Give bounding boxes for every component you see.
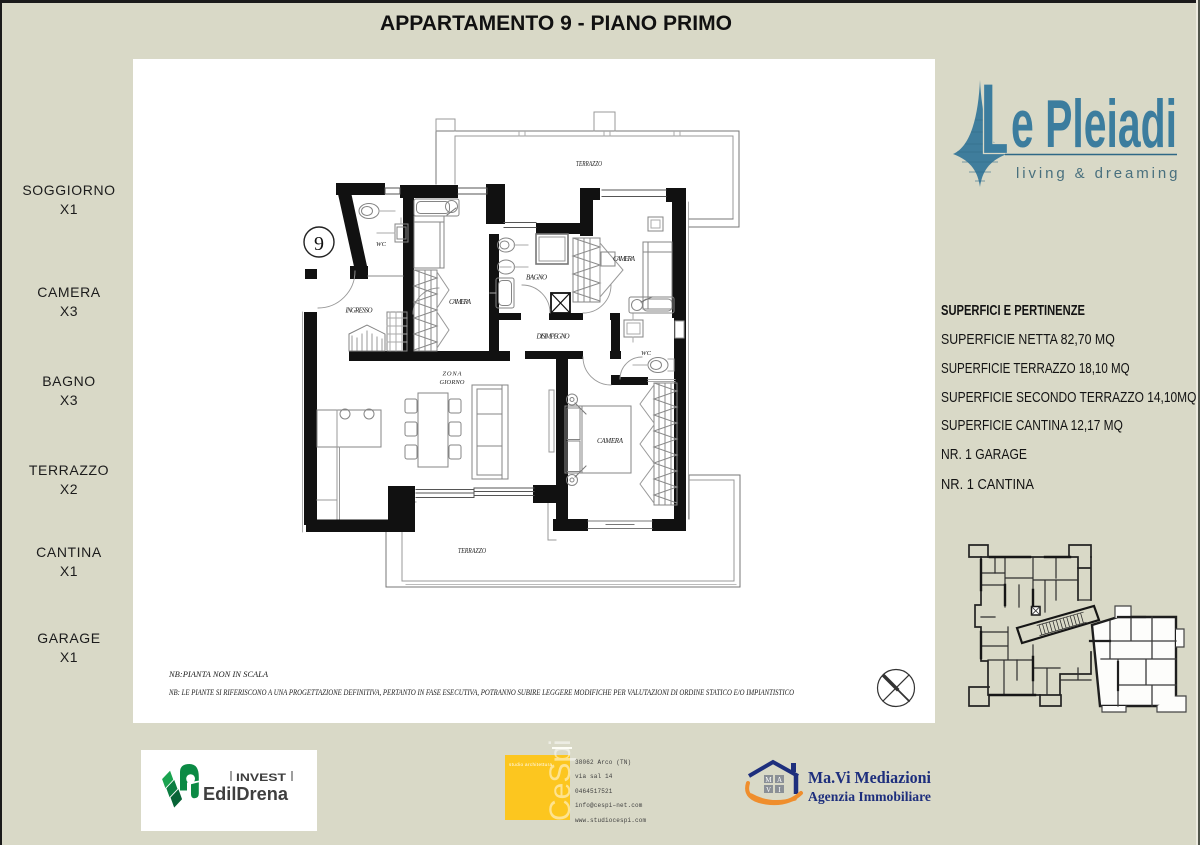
svg-text:NB: LE PIANTE SI RIFERISCONO A: NB: LE PIANTE SI RIFERISCONO A UNA PROGE… (168, 687, 794, 697)
svg-text:living & dreaming: living & dreaming (1016, 165, 1180, 182)
svg-text:SUPERFICIE CANTINA 12,17 MQ: SUPERFICIE CANTINA 12,17 MQ (941, 417, 1123, 434)
svg-text:Agenzia Immobiliare: Agenzia Immobiliare (808, 790, 931, 805)
svg-text:APPARTAMENTO 9 - PIANO PRIMO: APPARTAMENTO 9 - PIANO PRIMO (380, 12, 732, 35)
svg-text:SUPERFICIE NETTA 82,70 MQ: SUPERFICIE NETTA 82,70 MQ (941, 331, 1115, 347)
svg-text:e Pleiadi: e Pleiadi (1011, 86, 1177, 162)
svg-text:DISIMPEGNO: DISIMPEGNO (536, 333, 570, 341)
svg-text:BAGNO: BAGNO (526, 274, 547, 282)
svg-text:Ma.Vi Mediazioni: Ma.Vi Mediazioni (808, 768, 931, 787)
svg-text:CAMERA: CAMERA (449, 298, 472, 306)
svg-text:M: M (765, 776, 772, 784)
svg-text:CAMERA: CAMERA (613, 255, 636, 263)
svg-text:SUPERFICIE TERRAZZO 18,10 MQ: SUPERFICIE TERRAZZO 18,10 MQ (941, 360, 1130, 377)
svg-text:WC: WC (376, 241, 387, 248)
svg-text:TERRAZZO: TERRAZZO (576, 160, 602, 168)
svg-text:NR. 1 GARAGE: NR. 1 GARAGE (941, 446, 1027, 463)
svg-text:CAMERA: CAMERA (597, 437, 624, 445)
svg-text:SUPERFICI E PERTINENZE: SUPERFICI E PERTINENZE (941, 301, 1085, 318)
svg-text:ZONA: ZONA (443, 371, 462, 378)
svg-text:SUPERFICIE SECONDO TERRAZZO 14: SUPERFICIE SECONDO TERRAZZO 14,10MQ (941, 389, 1196, 406)
svg-text:NR. 1 CANTINA: NR. 1 CANTINA (941, 475, 1035, 492)
svg-text:GIORNO: GIORNO (440, 379, 465, 386)
svg-text:V: V (766, 786, 771, 794)
svg-text:WC: WC (641, 350, 652, 357)
svg-text:TERRAZZO: TERRAZZO (458, 547, 486, 555)
svg-text:INGRESSO: INGRESSO (345, 307, 373, 315)
svg-text:NB:PIANTA NON IN SCALA: NB:PIANTA NON IN SCALA (168, 669, 269, 679)
svg-text:EdilDrena: EdilDrena (203, 784, 289, 804)
svg-text:INVEST: INVEST (236, 772, 286, 784)
svg-text:9: 9 (314, 233, 324, 255)
svg-text:A: A (777, 776, 782, 784)
